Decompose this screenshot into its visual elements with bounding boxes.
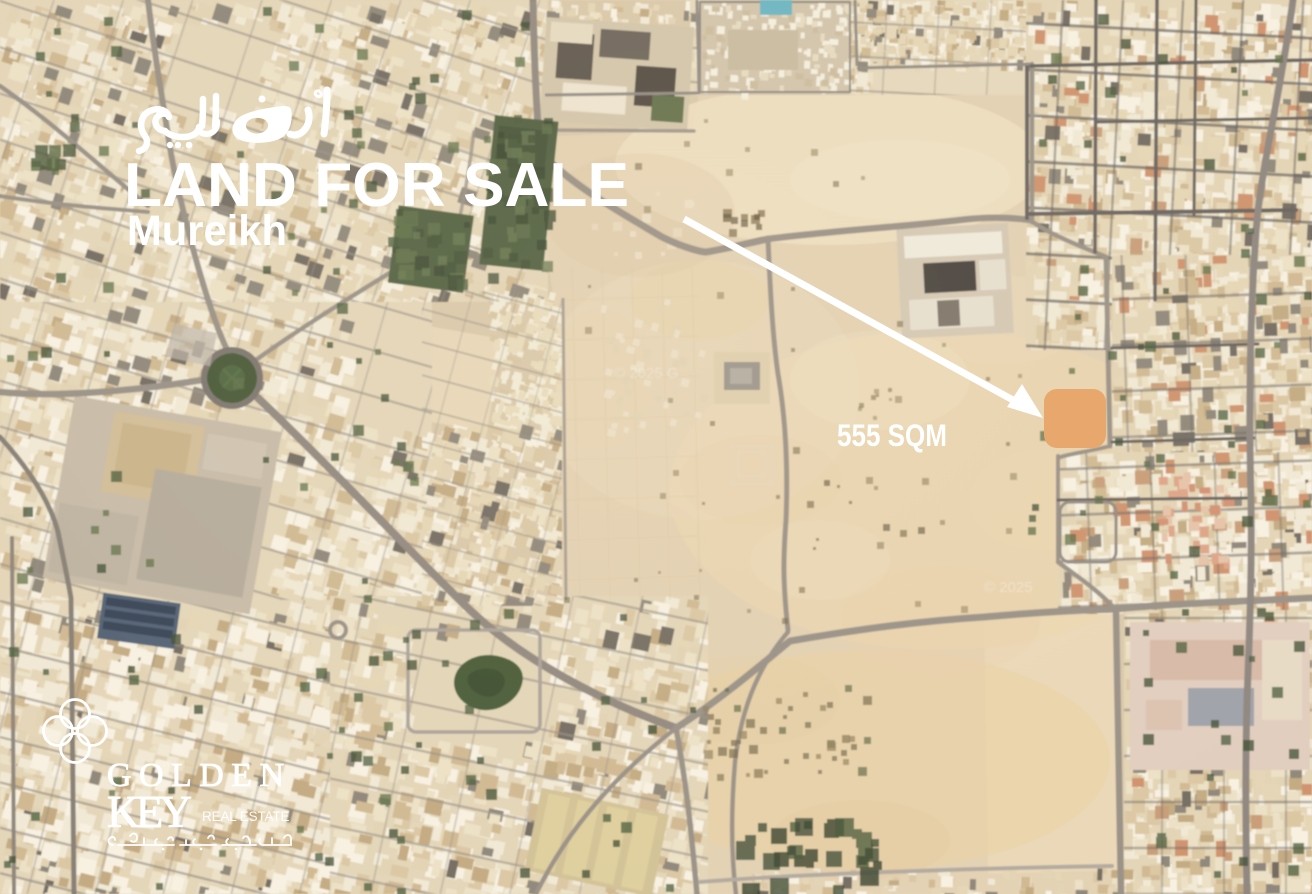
svg-text:Mureikh: Mureikh — [127, 207, 287, 255]
svg-text:REAL ESTATE: REAL ESTATE — [202, 809, 291, 824]
svg-text:555 SQM: 555 SQM — [837, 417, 947, 453]
svg-text:KEY: KEY — [107, 787, 198, 837]
